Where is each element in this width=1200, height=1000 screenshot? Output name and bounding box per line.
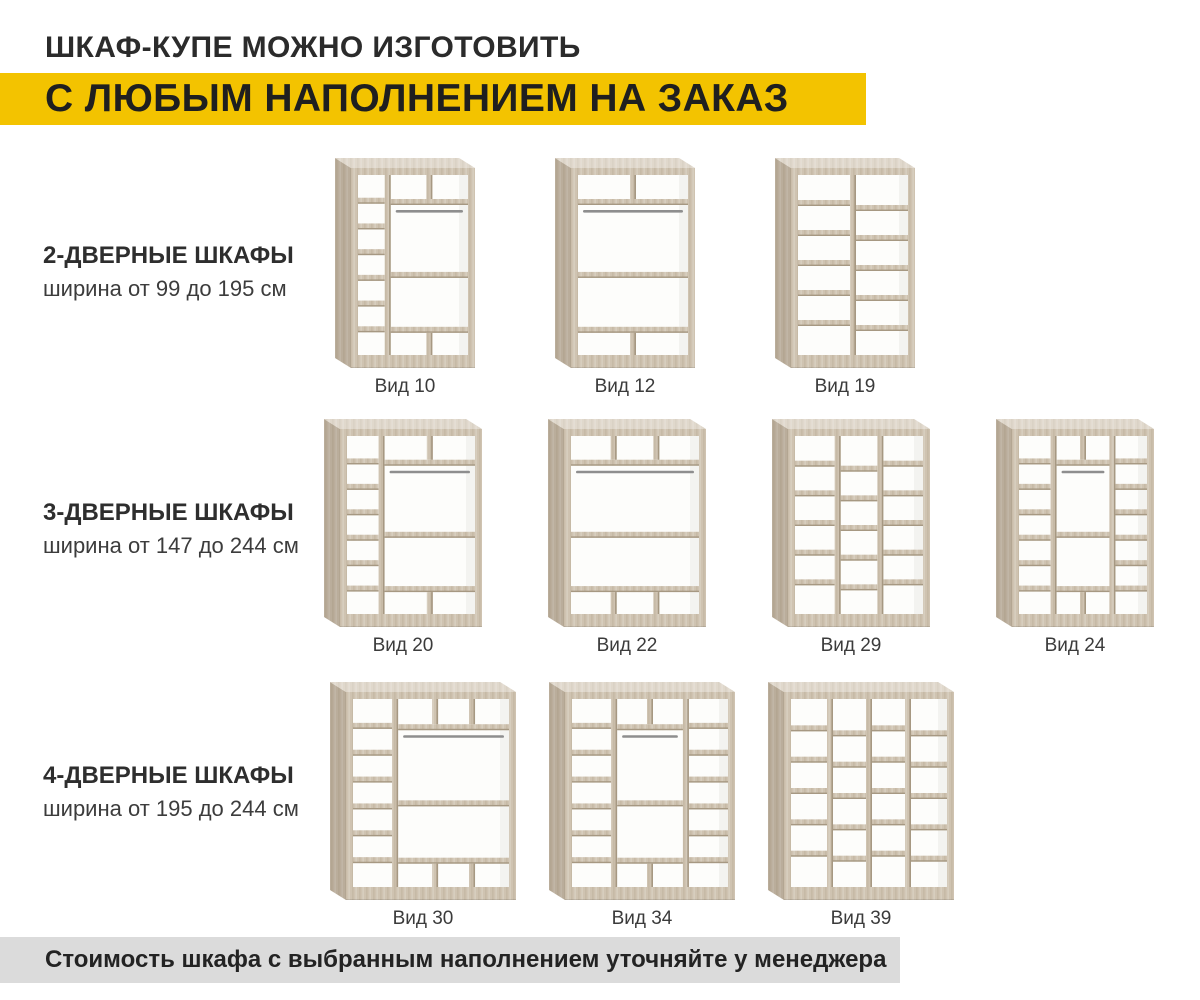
section-items: Вид 20 Вид 22 Вид 29 Вид 24	[324, 419, 1154, 657]
wardrobe-section: 2-ДВЕРНЫЕ ШКАФЫ ширина от 99 до 195 см В…	[0, 158, 1200, 416]
wardrobe-label: Вид 10	[375, 376, 436, 398]
wardrobe-card: Вид 30	[330, 682, 516, 930]
section-title: 4-ДВЕРНЫЕ ШКАФЫ	[43, 762, 333, 790]
wardrobe-illustration	[768, 682, 954, 900]
wardrobe-illustration	[549, 682, 735, 900]
wardrobe-card: Вид 29	[772, 419, 930, 657]
wardrobe-illustration	[324, 419, 482, 627]
section-label: 4-ДВЕРНЫЕ ШКАФЫ ширина от 195 до 244 см	[43, 762, 333, 822]
wardrobe-section: 4-ДВЕРНЫЕ ШКАФЫ ширина от 195 до 244 см …	[0, 682, 1200, 940]
wardrobe-card: Вид 19	[775, 158, 915, 398]
wardrobe-section: 3-ДВЕРНЫЕ ШКАФЫ ширина от 147 до 244 см …	[0, 419, 1200, 677]
wardrobe-illustration	[330, 682, 516, 900]
wardrobe-card: Вид 39	[768, 682, 954, 930]
wardrobe-label: Вид 39	[831, 908, 892, 930]
page-title: ШКАФ-КУПЕ МОЖНО ИЗГОТОВИТЬ	[45, 31, 581, 65]
wardrobe-illustration	[548, 419, 706, 627]
section-title: 3-ДВЕРНЫЕ ШКАФЫ	[43, 499, 333, 527]
section-label: 3-ДВЕРНЫЕ ШКАФЫ ширина от 147 до 244 см	[43, 499, 333, 559]
wardrobe-label: Вид 29	[821, 635, 882, 657]
wardrobe-label: Вид 30	[393, 908, 454, 930]
wardrobe-illustration	[555, 158, 695, 368]
wardrobe-label: Вид 24	[1045, 635, 1106, 657]
wardrobe-card: Вид 24	[996, 419, 1154, 657]
wardrobe-illustration	[775, 158, 915, 368]
wardrobe-card: Вид 20	[324, 419, 482, 657]
section-items: Вид 30 Вид 34 Вид 39	[330, 682, 954, 930]
section-label: 2-ДВЕРНЫЕ ШКАФЫ ширина от 99 до 195 см	[43, 242, 333, 302]
wardrobe-card: Вид 34	[549, 682, 735, 930]
wardrobe-illustration	[996, 419, 1154, 627]
wardrobe-label: Вид 22	[597, 635, 658, 657]
section-subtitle: ширина от 195 до 244 см	[43, 796, 333, 822]
section-title: 2-ДВЕРНЫЕ ШКАФЫ	[43, 242, 333, 270]
wardrobe-label: Вид 19	[815, 376, 876, 398]
footer-note: Стоимость шкафа с выбранным наполнением …	[0, 937, 900, 983]
catalog-page: ШКАФ-КУПЕ МОЖНО ИЗГОТОВИТЬ С ЛЮБЫМ НАПОЛ…	[0, 0, 1200, 1000]
section-subtitle: ширина от 99 до 195 см	[43, 276, 333, 302]
section-items: Вид 10 Вид 12 Вид 19	[335, 158, 915, 398]
wardrobe-card: Вид 22	[548, 419, 706, 657]
wardrobe-card: Вид 12	[555, 158, 695, 398]
page-subtitle-highlight: С ЛЮБЫМ НАПОЛНЕНИЕМ НА ЗАКАЗ	[0, 73, 866, 125]
wardrobe-label: Вид 12	[595, 376, 656, 398]
wardrobe-label: Вид 20	[373, 635, 434, 657]
wardrobe-card: Вид 10	[335, 158, 475, 398]
wardrobe-label: Вид 34	[612, 908, 673, 930]
wardrobe-illustration	[335, 158, 475, 368]
wardrobe-illustration	[772, 419, 930, 627]
section-subtitle: ширина от 147 до 244 см	[43, 533, 333, 559]
